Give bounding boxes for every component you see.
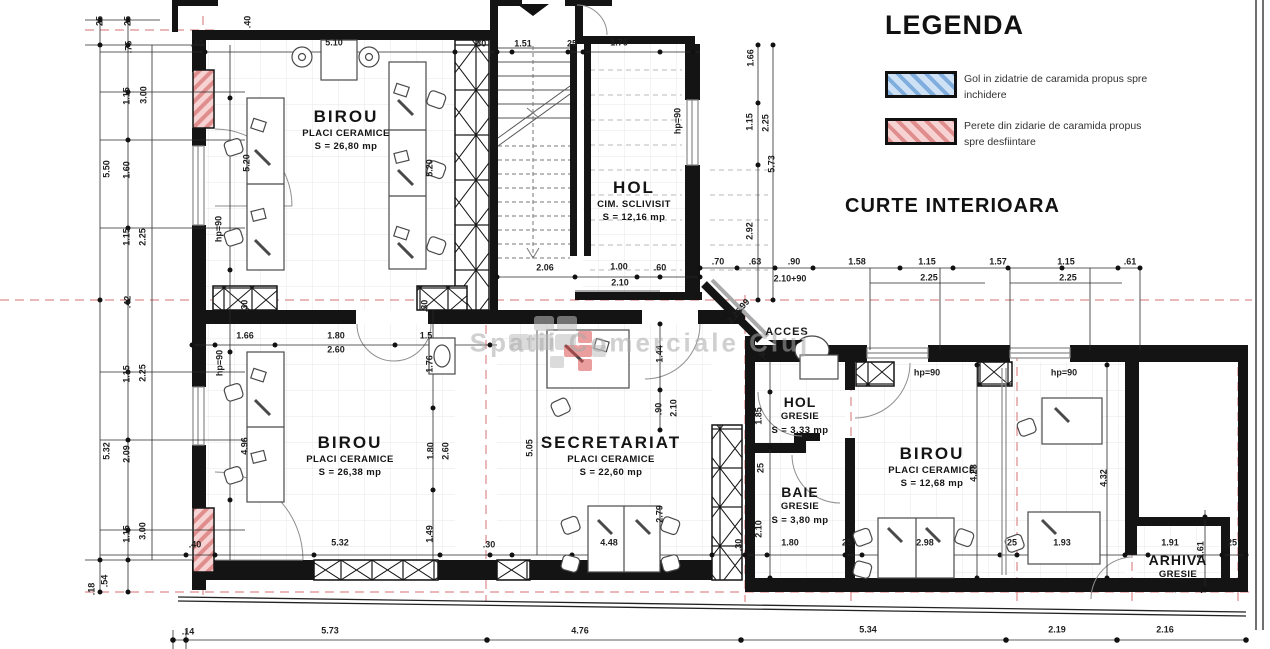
room-finish: PLACI CERAMICE: [541, 453, 681, 466]
room-finish: GRESIE: [772, 500, 829, 513]
room-area: S = 12,16 mp: [597, 211, 671, 224]
dim-label: 2.79: [656, 505, 665, 523]
dim-label: 1.15: [1057, 258, 1075, 267]
legend-title: LEGENDA: [885, 10, 1175, 41]
dim-label: 1.15: [123, 87, 132, 105]
room-name: BIROU: [306, 434, 393, 453]
dim-label: 1.76: [426, 355, 435, 373]
dim-label: .30: [483, 541, 496, 550]
dim-label: 1.80: [427, 442, 436, 460]
dim-label: 25: [842, 539, 852, 548]
dim-label: 1.00: [610, 263, 628, 272]
dim-label: 2.60: [327, 346, 345, 355]
room-name: HOL: [772, 395, 829, 410]
dim-label: 4.76: [571, 627, 589, 636]
room-finish: PLACI CERAMICE: [888, 464, 975, 477]
dim-label: 1.66: [747, 49, 756, 67]
dim-label: 1.80: [781, 539, 799, 548]
watermark-text: Spatii Comerciale Cluj: [470, 328, 811, 359]
dim-label: .40: [189, 541, 202, 550]
dim-label: 2.60: [442, 442, 451, 460]
room-name: SECRETARIAT: [541, 434, 681, 453]
dim-label: 1.58: [848, 258, 866, 267]
dim-label: 1.66: [236, 332, 254, 341]
dim-label: 5.73: [321, 627, 339, 636]
room-label-hol-2: HOL GRESIE S = 3,33 mp: [772, 395, 829, 437]
dim-label: 2.10: [755, 520, 764, 538]
dim-label: 25: [757, 463, 766, 473]
dim-label: 2.25: [139, 364, 148, 382]
dim-label: 1.15: [123, 525, 132, 543]
dim-label: 1.51: [514, 40, 532, 49]
dim-label: .90: [655, 403, 664, 416]
dim-label: hp=90: [674, 108, 683, 134]
floor-plan-page: 25 25 .75 1.15 3.00 1.60 5.50 1.15 2.25 …: [0, 0, 1270, 649]
dim-label: hp=90: [216, 350, 225, 376]
room-finish: GRESIE: [772, 410, 829, 423]
dim-label: 1.60: [123, 161, 132, 179]
dim-label: 4.48: [600, 539, 618, 548]
room-area: S = 12,68 mp: [888, 477, 975, 490]
dim-label: 2.98: [916, 539, 934, 548]
room-area: S = 3,80 mp: [772, 514, 829, 527]
dim-label: .63: [749, 258, 762, 267]
dim-label: .30: [735, 539, 744, 552]
room-label-baie: BAIE GRESIE S = 3,80 mp: [772, 485, 829, 527]
entrance-arrow-icon: [517, 4, 549, 16]
dim-label: 2.25: [139, 228, 148, 246]
dim-label: .42: [124, 296, 133, 309]
dim-label: 5.10: [325, 39, 343, 48]
dim-label: 1.85: [755, 407, 764, 425]
dim-label: 2.16: [1156, 626, 1174, 635]
room-label-birou-3: BIROU PLACI CERAMICE S = 12,68 mp: [888, 445, 975, 490]
room-name: BIROU: [302, 108, 389, 127]
dim-label: 25: [567, 40, 577, 49]
dim-label: 2.92: [746, 222, 755, 240]
dim-label: 1.49: [426, 525, 435, 543]
dim-label: 5.20: [426, 159, 435, 177]
dim-label: .70: [712, 258, 725, 267]
dim-label: 5.50: [103, 160, 112, 178]
dim-label: 5.34: [859, 626, 877, 635]
dim-label: 25: [96, 16, 105, 26]
room-label-birou-1: BIROU PLACI CERAMICE S = 26,80 mp: [302, 108, 389, 153]
dim-label: .40: [191, 40, 204, 49]
room-finish: PLACI CERAMICE: [306, 453, 393, 466]
dim-label: 2.10: [611, 279, 629, 288]
dim-label: 1.80: [327, 332, 345, 341]
room-name: BIROU: [888, 445, 975, 464]
dim-label: 1.5: [420, 332, 433, 341]
room-finish: CIM. SCLIVISIT: [597, 198, 671, 211]
room-name: HOL: [597, 179, 671, 198]
dim-label: 5.20: [243, 154, 252, 172]
dim-label: 1.57: [989, 258, 1007, 267]
dim-label: 3.00: [139, 522, 148, 540]
blue-hatch-swatch-icon: [885, 71, 957, 98]
dim-label: 4.32: [1100, 469, 1109, 487]
staircase: [498, 46, 570, 258]
dim-label: 1.15: [746, 113, 755, 131]
dim-label: 2.09: [123, 445, 132, 463]
dim-label: 1.15: [123, 228, 132, 246]
room-label-birou-2: BIROU PLACI CERAMICE S = 26,38 mp: [306, 434, 393, 479]
dim-label: 1.91: [1161, 539, 1179, 548]
room-finish: GRESIE: [1149, 568, 1208, 581]
dim-label: 5.05: [526, 439, 535, 457]
dim-label: 1.15: [918, 258, 936, 267]
legend: LEGENDA Gol in zidatrie de caramida prop…: [885, 10, 1175, 150]
legend-item: Perete din zidarie de caramida propus sp…: [885, 118, 1175, 151]
dim-label: 5.32: [331, 539, 349, 548]
courtyard-title: CURTE INTERIOARA: [845, 195, 1060, 218]
room-area: S = 26,38 mp: [306, 466, 393, 479]
dim-label: 4.96: [241, 437, 250, 455]
dim-label: .18: [88, 583, 97, 596]
red-hatch-swatch-icon: [885, 118, 957, 145]
dim-label: .61: [1124, 258, 1137, 267]
room-label-hol-1: HOL CIM. SCLIVISIT S = 12,16 mp: [597, 179, 671, 224]
legend-item-label: Perete din zidarie de caramida propus sp…: [964, 118, 1164, 151]
dim-label: 2.19: [1048, 626, 1066, 635]
dim-label: 1.15: [123, 365, 132, 383]
room-area: S = 26,80 mp: [302, 140, 389, 153]
dim-label: 2.25: [762, 114, 771, 132]
room-name: ARHIVA: [1149, 553, 1208, 568]
dim-label: 1.93: [1053, 539, 1071, 548]
room-finish: PLACI CERAMICE: [302, 127, 389, 140]
room-label-arhiva: ARHIVA GRESIE S = 3,05 mp: [1149, 553, 1208, 595]
room-name: BAIE: [772, 485, 829, 500]
dim-label: 25: [1227, 539, 1237, 548]
room-area: S = 3,05 mp: [1149, 582, 1208, 595]
dim-label: 25: [1007, 539, 1017, 548]
dim-label: .30: [241, 300, 250, 313]
dim-label: .14: [182, 628, 195, 637]
dim-label: 5.73: [768, 155, 777, 173]
dim-label: .30: [474, 40, 487, 49]
dim-label: 2.25: [920, 274, 938, 283]
dim-label: .30: [421, 300, 430, 313]
dim-label: .54: [101, 575, 110, 588]
legend-item-label: Gol in zidatrie de caramida propus spre …: [964, 71, 1164, 104]
dim-label: 1.76: [610, 39, 628, 48]
dim-label: 2.10: [670, 399, 679, 417]
legend-item: Gol in zidatrie de caramida propus spre …: [885, 71, 1175, 104]
dim-label: hp=90: [914, 369, 940, 378]
dim-label: 5.32: [103, 442, 112, 460]
dim-label: 25: [124, 16, 133, 26]
dim-label: 2.25: [1059, 274, 1077, 283]
room-area: S = 22,60 mp: [541, 466, 681, 479]
dim-label: 3.00: [140, 86, 149, 104]
dim-label: hp=90: [215, 216, 224, 242]
room-label-secretariat: SECRETARIAT PLACI CERAMICE S = 22,60 mp: [541, 434, 681, 479]
dim-label: 2.10+90: [774, 275, 807, 284]
room-area: S = 3,33 mp: [772, 424, 829, 437]
dim-label: .60: [654, 264, 667, 273]
dim-label: 2.06: [536, 264, 554, 273]
dim-label: hp=90: [1051, 369, 1077, 378]
dim-label: .40: [244, 16, 253, 29]
dim-label: .90: [788, 258, 801, 267]
dim-label: .75: [125, 41, 134, 54]
